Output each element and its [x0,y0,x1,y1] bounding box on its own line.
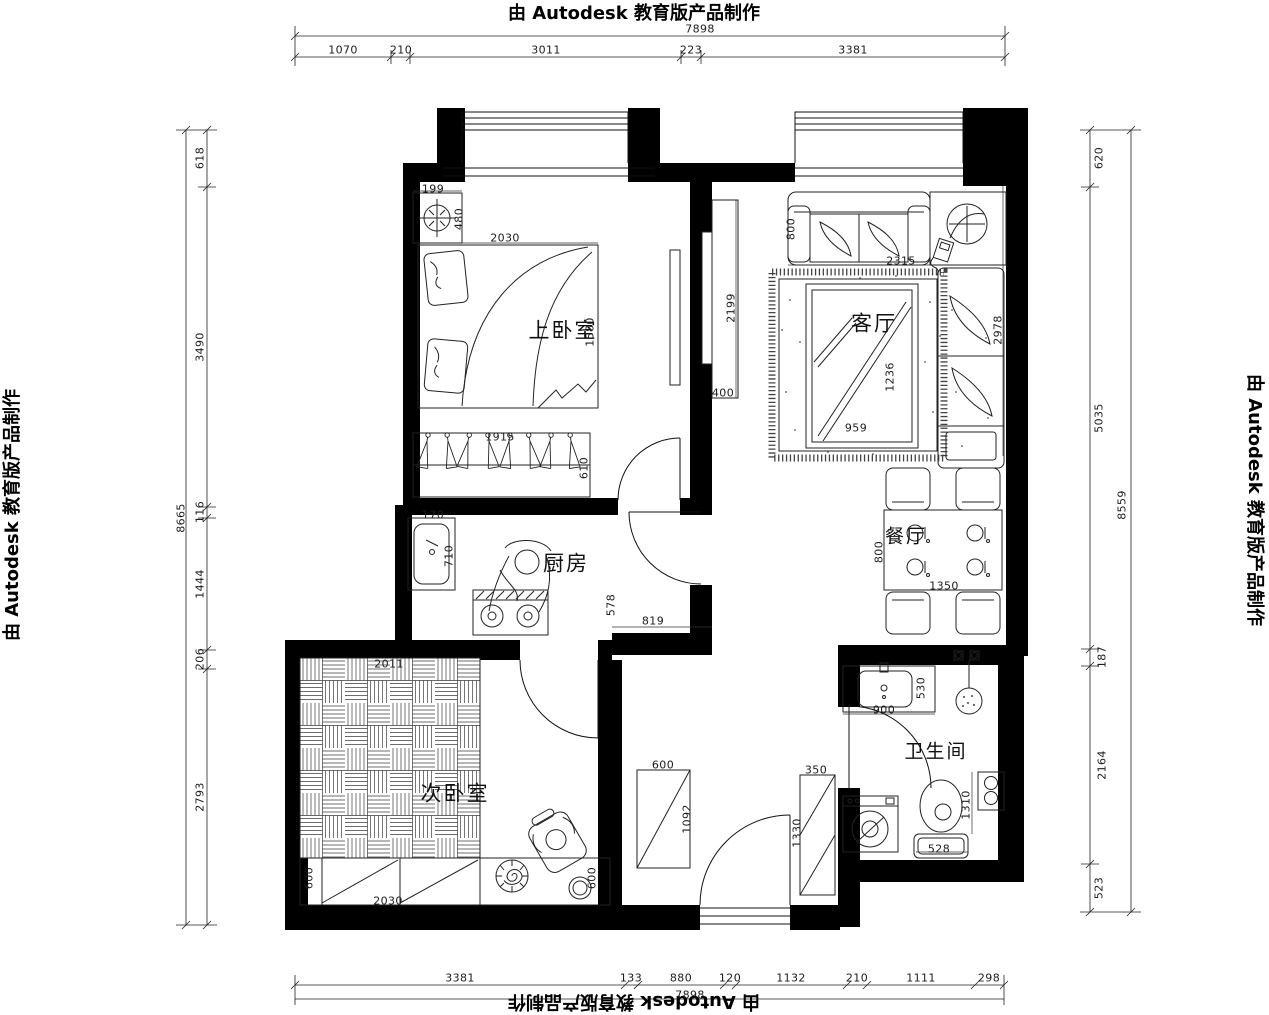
entry-door [700,815,790,905]
dim-dining-table-d: 800 [874,541,885,563]
dim-sink-w: 170 [422,510,444,521]
living-window [795,112,963,176]
dining-table [884,510,1002,590]
dim-right-seg-3: 2164 [1097,750,1108,780]
watermark-bottom: 由 Autodesk 教育版产品制作 [508,992,760,1010]
person-figure [489,540,551,612]
dim-vanity-w: 900 [873,705,895,716]
dim-right-seg-0: 620 [1094,147,1105,169]
telephone-icon [933,238,953,262]
watermark-right: 由 Autodesk 教育版产品制作 [1245,374,1263,626]
second-bedroom-door [520,660,598,738]
dim-bed-len: 1580 [585,317,596,347]
dim-bottom-seg-7: 298 [978,973,1000,984]
dim-bottom-seg-6: 1111 [906,973,936,984]
dim-sink-len: 710 [444,545,455,567]
kitchen-door [629,512,701,584]
dim-top-seg-1: 210 [390,45,412,56]
room-label-kitchen: 厨房 [543,554,589,575]
dim-shoe-cabinet-d: 350 [805,765,827,776]
dim-top-seg-0: 1070 [328,45,358,56]
dim-low-cabinet-w: 2030 [373,896,403,907]
dim-left-seg-5: 2793 [195,782,206,812]
shoe-cabinet [800,775,835,895]
dim-bottom-seg-3: 120 [719,973,741,984]
floorplan-sheet: 由 Autodesk 教育版产品制作 由 Autodesk 教育版产品制作 由 … [0,0,1269,1015]
dim-bottom-seg-2: 880 [670,973,692,984]
dim-coffee-table-w: 959 [845,423,867,434]
cooktop [473,590,548,635]
watermark-top: 由 Autodesk 教育版产品制作 [508,5,760,23]
dim-right-total: 8559 [1117,490,1128,520]
dim-left-seg-3: 1444 [195,569,206,599]
room-label-bathroom: 卫生间 [904,743,967,762]
dim-chaise-len: 2978 [993,315,1004,345]
place-setting [967,525,990,543]
dim-sofa-w: 2315 [886,256,916,267]
dim-hall-cabinet-len: 1092 [682,804,693,834]
dining-chairs [886,468,1000,634]
dim-tv-wall-len: 2199 [726,293,737,323]
dim-shoe-cabinet-len: 1330 [792,818,803,848]
dim-kitchen-counter-d: 578 [606,594,617,616]
master-bedroom-door [618,438,680,500]
dim-stool-d: 600 [587,867,598,889]
dim-hall-cabinet-w: 600 [652,760,674,771]
dim-left-seg-4: 206 [195,648,206,670]
dim-toilet-clearance: 1310 [961,790,972,820]
spiral-stool [496,860,528,892]
dim-bottom-total: 7898 [675,990,705,1001]
room-label-dining: 餐厅 [885,528,927,547]
bedroom-window [443,112,655,176]
dim-dining-table-w: 1350 [929,581,959,592]
dim-corner-cabinet-w: 199 [422,184,444,195]
dim-left-seg-2: 116 [195,501,206,523]
dim-left-seg-1: 3490 [195,332,206,362]
room-label-living-room: 客厅 [851,314,897,335]
dim-top-seg-3: 223 [680,45,702,56]
dim-bottom-seg-4: 1132 [776,973,806,984]
dim-right-seg-4: 523 [1094,877,1105,899]
dim-right-seg-2: 187 [1097,646,1108,668]
dim-top-seg-4: 3381 [838,45,868,56]
dim-left-total: 8665 [176,503,187,533]
dim-sofa-d: 800 [786,218,797,240]
dim-corner-cabinet-h: 480 [454,208,465,230]
dim-bottom-seg-0: 3381 [445,973,475,984]
watermark-left: 由 Autodesk 教育版产品制作 [4,389,22,641]
dim-vanity-d: 530 [916,677,927,699]
place-setting [907,559,930,577]
dim-bed-w: 2030 [490,233,520,244]
dim-bottom-seg-1: 133 [620,973,642,984]
entry-threshold [700,908,790,924]
dim-left-seg-0: 618 [195,147,206,169]
dim-top-total: 7898 [685,24,715,35]
dim-tv-wall-d: 400 [712,388,734,399]
tatami-mat [300,658,480,858]
desk-chair-person [522,803,590,876]
chaise-sofa [938,268,1004,468]
dim-tatami-w: 2011 [374,659,404,670]
place-setting [967,559,990,577]
room-label-second-bedroom: 次卧室 [421,784,490,805]
corner-table [930,192,1006,275]
dim-kitchen-counter-w: 819 [642,616,664,627]
floor-plan-drawing [0,0,1269,1015]
dim-bottom-seg-5: 210 [846,973,868,984]
dim-top-seg-2: 3011 [531,45,561,56]
dim-coffee-table-len: 1236 [885,362,896,392]
dim-wardrobe-d: 610 [579,457,590,479]
dim-wardrobe-w: 1915 [485,432,515,443]
dim-toilet-w: 528 [928,844,950,855]
dim-low-cabinet-d: 600 [304,867,315,889]
dim-right-seg-1: 5035 [1094,403,1105,433]
